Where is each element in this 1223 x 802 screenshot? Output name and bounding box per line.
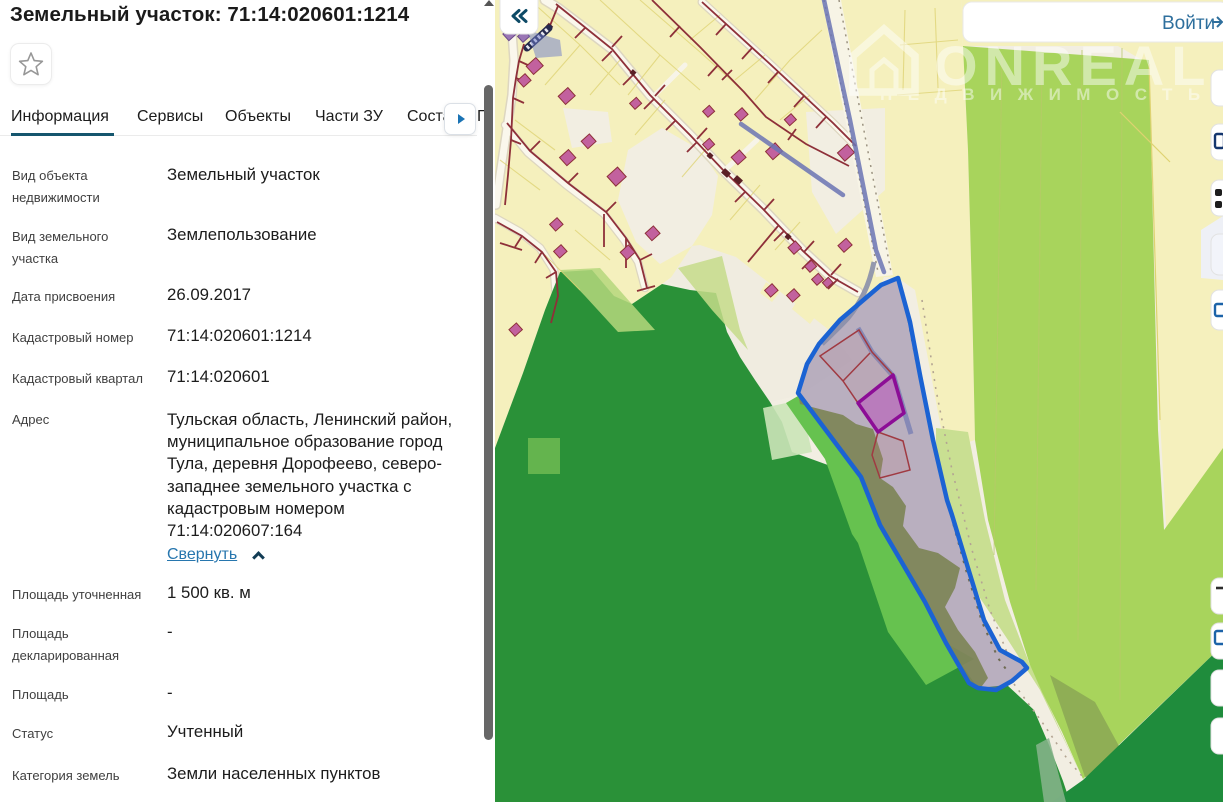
svg-text:НЕДВИЖИМОСТЬ: НЕДВИЖИМОСТЬ (880, 85, 1216, 104)
svg-text:Войти: Войти (1162, 13, 1215, 34)
